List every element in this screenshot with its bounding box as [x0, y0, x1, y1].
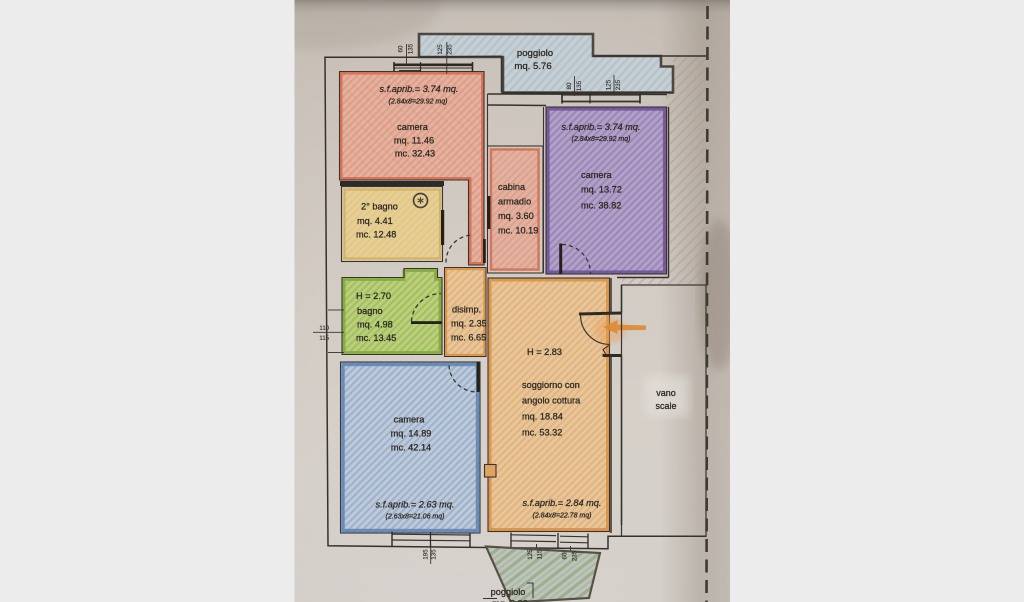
svg-text:mc. 53.32: mc. 53.32	[522, 428, 562, 438]
svg-text:mc. 6.65: mc. 6.65	[451, 333, 486, 343]
svg-text:235: 235	[572, 550, 579, 561]
svg-text:125: 125	[437, 44, 444, 55]
svg-text:mq. 5.76: mq. 5.76	[514, 61, 551, 72]
svg-text:(2.84x8=22.78 mq): (2.84x8=22.78 mq)	[533, 513, 592, 520]
svg-text:235: 235	[615, 79, 622, 90]
svg-text:s.f.aprib.= 3.74 mq.: s.f.aprib.= 3.74 mq.	[380, 84, 459, 94]
svg-text:mc. 32.43: mc. 32.43	[395, 149, 435, 159]
svg-text:H = 2.70: H = 2.70	[356, 291, 391, 301]
svg-text:mq. 18.84: mq. 18.84	[522, 412, 563, 422]
svg-text:mq. 14.89: mq. 14.89	[391, 429, 432, 439]
svg-text:mc. 13.45: mc. 13.45	[356, 333, 396, 343]
svg-text:135: 135	[431, 549, 438, 560]
svg-text:110: 110	[319, 326, 329, 332]
svg-text:115: 115	[319, 336, 329, 342]
svg-text:camera: camera	[397, 122, 429, 132]
svg-text:soggiorno con: soggiorno con	[522, 380, 580, 390]
svg-text:(2.63x8=21.06 mq): (2.63x8=21.06 mq)	[386, 514, 445, 521]
svg-text:80: 80	[566, 82, 573, 89]
svg-text:camera: camera	[394, 415, 426, 425]
svg-text:mq. 4.41: mq. 4.41	[357, 216, 393, 226]
svg-text:mc. 38.82: mc. 38.82	[581, 201, 621, 211]
svg-text:s.f.aprib.= 2.84 mq.: s.f.aprib.= 2.84 mq.	[523, 498, 602, 508]
svg-text:mq. 11.46: mq. 11.46	[394, 136, 434, 146]
svg-text:mc. 12.48: mc. 12.48	[356, 230, 396, 240]
svg-text:poggiolo: poggiolo	[517, 48, 553, 59]
svg-text:cabina: cabina	[498, 182, 526, 192]
svg-text:125: 125	[606, 79, 613, 90]
svg-text:angolo cottura: angolo cottura	[522, 396, 581, 406]
svg-text:vano: vano	[656, 388, 676, 398]
svg-text:mc. 42.14: mc. 42.14	[391, 443, 431, 453]
svg-text:(2.84x8=29.92 mq): (2.84x8=29.92 mq)	[389, 99, 448, 106]
svg-text:60: 60	[562, 552, 569, 559]
svg-text:195: 195	[423, 549, 430, 560]
svg-text:60: 60	[398, 45, 405, 52]
svg-text:armadio: armadio	[498, 197, 531, 207]
svg-text:H = 2.83: H = 2.83	[527, 347, 562, 357]
svg-text:bagno: bagno	[357, 306, 383, 316]
svg-text:mq. 4.98: mq. 4.98	[357, 320, 393, 330]
svg-text:135: 135	[408, 43, 415, 54]
svg-text:115: 115	[537, 549, 544, 559]
svg-text:s.f.aprib.= 3.74 mq.: s.f.aprib.= 3.74 mq.	[562, 122, 641, 132]
svg-text:135: 135	[576, 80, 583, 91]
svg-text:mq. 2.35: mq. 2.35	[451, 319, 487, 329]
svg-text:2° bagno: 2° bagno	[361, 202, 398, 212]
svg-text:(2.84x8=29.92 mq): (2.84x8=29.92 mq)	[572, 136, 631, 143]
svg-text:mc. 10.19: mc. 10.19	[498, 226, 538, 236]
svg-text:camera: camera	[581, 170, 613, 180]
svg-text:s.f.aprib.= 2.63 mq.: s.f.aprib.= 2.63 mq.	[376, 500, 455, 510]
svg-text:mq. 13.72: mq. 13.72	[581, 185, 622, 195]
svg-text:235: 235	[447, 44, 454, 55]
svg-text:poggiolo: poggiolo	[491, 587, 526, 597]
svg-text:125: 125	[527, 549, 534, 560]
svg-text:disimp.: disimp.	[452, 305, 481, 315]
svg-text:mq. 2.93: mq. 2.93	[492, 599, 528, 602]
svg-text:scale: scale	[655, 401, 676, 411]
svg-text:mq. 3.60: mq. 3.60	[498, 211, 534, 221]
